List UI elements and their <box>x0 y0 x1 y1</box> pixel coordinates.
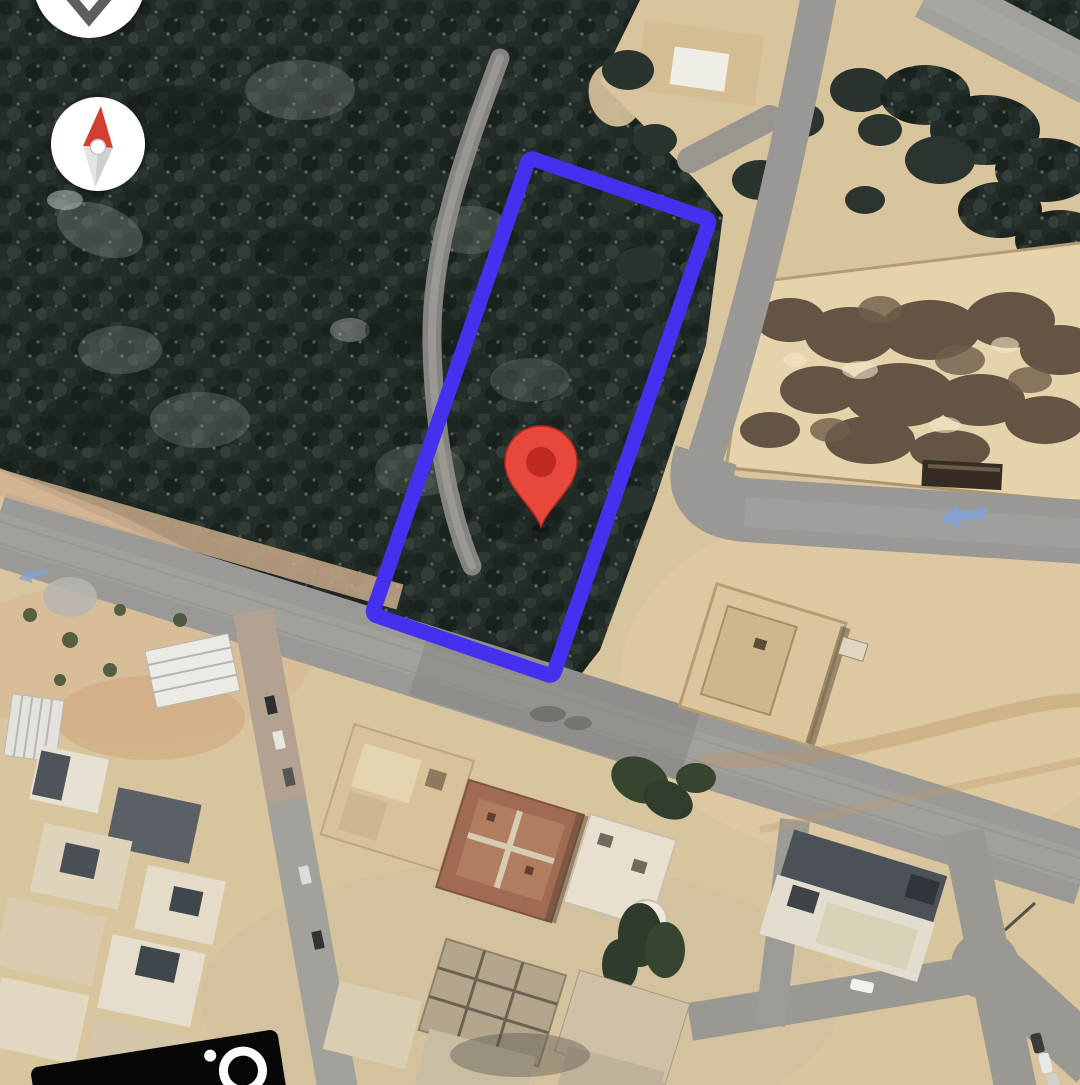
debris-lot <box>727 243 1080 505</box>
watermark-glyph-ring <box>215 1043 270 1085</box>
chevron-down-icon <box>33 0 145 38</box>
watermark-glyph-dot <box>203 1049 217 1063</box>
satellite-map[interactable]: هيمة <box>0 0 1080 1085</box>
collapse-control-button[interactable] <box>33 0 145 38</box>
compass-needle-icon <box>51 97 145 191</box>
location-pin-icon[interactable] <box>495 412 587 534</box>
compass-button[interactable] <box>51 97 145 191</box>
